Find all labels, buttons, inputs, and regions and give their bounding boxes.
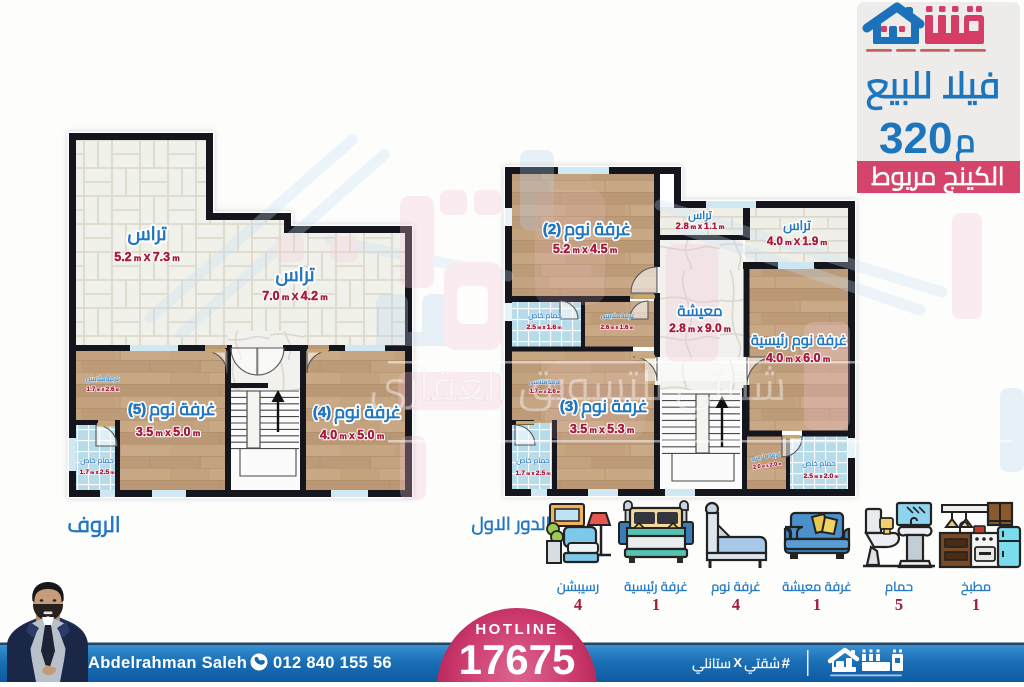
svg-text:1.7 m x 2.5 m: 1.7 m x 2.5 m — [516, 470, 551, 477]
svg-text:1: 1 — [652, 595, 660, 614]
svg-text:1.7 m x 2.5 m: 1.7 m x 2.5 m — [80, 469, 115, 476]
svg-text:2.5 m x 2.0 m: 2.5 m x 2.0 m — [804, 473, 839, 480]
svg-text:5.2 m x 4.5 m: 5.2 m x 4.5 m — [553, 242, 617, 256]
svg-text:1: 1 — [813, 595, 821, 614]
svg-text:4.0 m x 6.0 m: 4.0 m x 6.0 m — [766, 351, 830, 365]
svg-text:X: X — [733, 655, 742, 670]
svg-text:5.2 m X 7.3 m: 5.2 m X 7.3 m — [114, 250, 179, 264]
svg-text:1.7 m x 2.6 m: 1.7 m x 2.6 m — [87, 386, 120, 393]
svg-text:(2): (2) — [543, 221, 561, 238]
svg-text:17675: 17675 — [459, 636, 576, 682]
svg-text:1: 1 — [972, 595, 980, 614]
svg-text:4: 4 — [732, 595, 740, 614]
svg-text:012 840 155 56: 012 840 155 56 — [273, 654, 392, 672]
svg-text:4: 4 — [574, 595, 582, 614]
svg-text:5: 5 — [895, 595, 903, 614]
svg-text:2.5 m x 1.6 m: 2.5 m x 1.6 m — [527, 324, 562, 331]
svg-text:320: 320 — [879, 114, 952, 163]
svg-text:3.5 m x 5.3 m: 3.5 m x 5.3 m — [570, 422, 634, 436]
svg-text:3.5 m x 5.0 m: 3.5 m x 5.0 m — [136, 425, 200, 439]
svg-text:#: # — [782, 655, 791, 672]
svg-text:4.0 m X 1.9 m: 4.0 m X 1.9 m — [767, 236, 827, 248]
svg-text:2.8 m x 9.0 m: 2.8 m x 9.0 m — [669, 321, 731, 335]
svg-text:(3): (3) — [560, 398, 578, 415]
svg-text:7.0 m X 4.2 m: 7.0 m X 4.2 m — [262, 289, 327, 303]
svg-text:4.0 m x 5.0 m: 4.0 m x 5.0 m — [320, 428, 384, 442]
svg-text:(4): (4) — [313, 404, 331, 421]
svg-text:(5): (5) — [128, 401, 146, 418]
svg-text:2.6 m x 1.6 m: 2.6 m x 1.6 m — [601, 324, 634, 331]
svg-text:Abdelrahman Saleh: Abdelrahman Saleh — [88, 654, 247, 672]
